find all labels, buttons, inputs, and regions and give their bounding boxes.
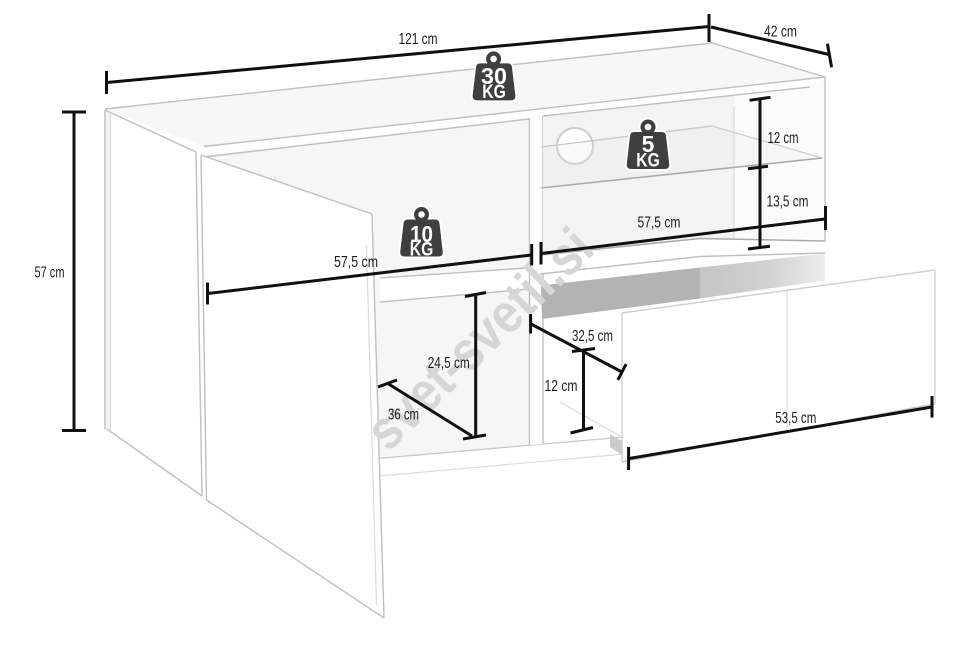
svg-text:13,5 cm: 13,5 cm (767, 194, 809, 211)
svg-text:57 cm: 57 cm (35, 265, 65, 282)
svg-text:KG: KG (410, 239, 434, 260)
svg-text:32,5 cm: 32,5 cm (572, 328, 613, 345)
svg-text:12 cm: 12 cm (768, 130, 799, 147)
svg-text:KG: KG (636, 151, 660, 172)
svg-text:12 cm: 12 cm (545, 378, 578, 395)
svg-text:53,5 cm: 53,5 cm (775, 410, 816, 427)
svg-text:121 cm: 121 cm (399, 31, 438, 48)
svg-text:KG: KG (482, 82, 506, 103)
svg-text:42 cm: 42 cm (764, 23, 797, 40)
svg-text:57,5 cm: 57,5 cm (334, 254, 378, 271)
svg-text:57,5 cm: 57,5 cm (638, 215, 681, 232)
svg-text:36 cm: 36 cm (388, 407, 419, 424)
svg-text:24,5 cm: 24,5 cm (428, 355, 470, 372)
